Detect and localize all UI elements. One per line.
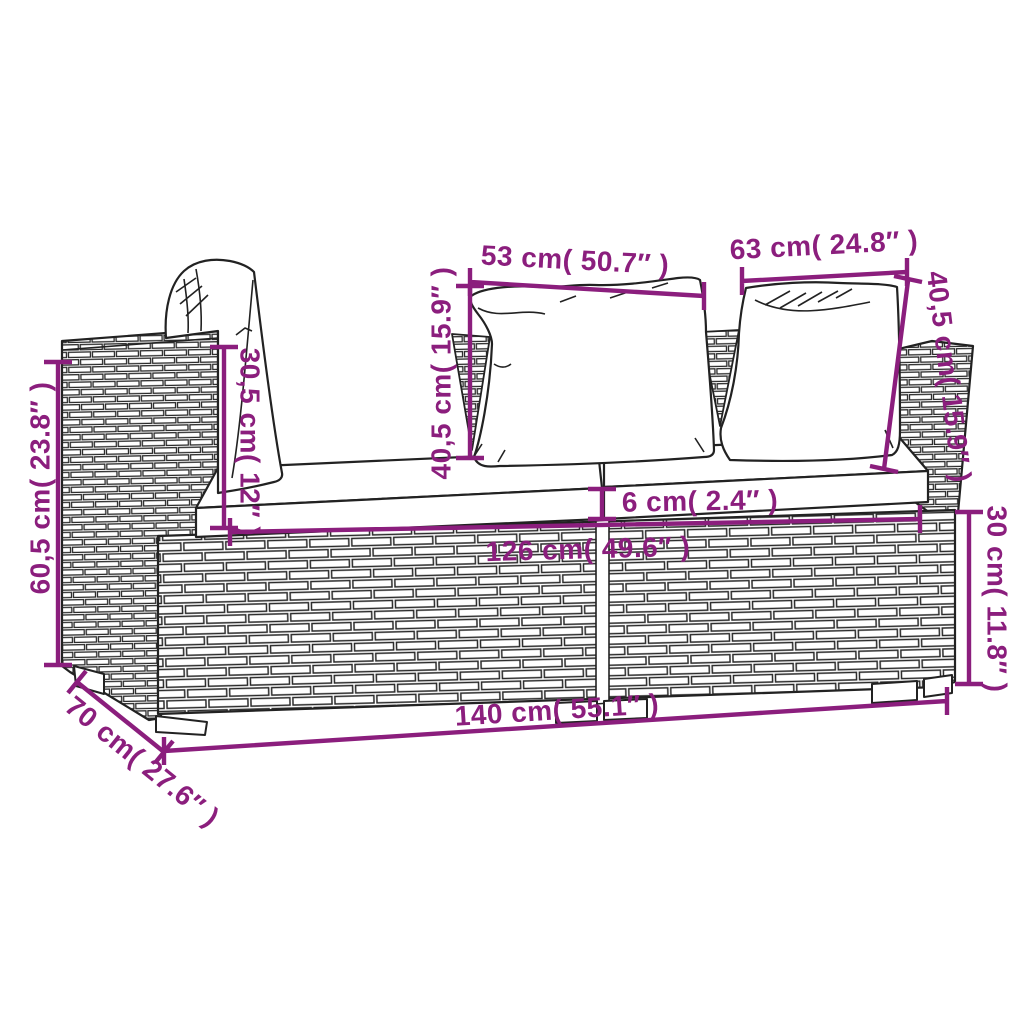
sofa-dimension-diagram: 53 cm( 50.7″ ) 63 cm( 24.8″ ) 40,5 cm( 1…: [0, 0, 1024, 1024]
back-pillow-right: [720, 282, 900, 461]
dimension-label: 40,5 cm( 15.9″ ): [425, 267, 456, 480]
dimension-line: [955, 512, 983, 684]
sofa-line-art: [62, 260, 973, 735]
dimension-label: 63 cm( 24.8″ ): [729, 224, 919, 265]
foot: [872, 681, 917, 703]
back-pillows: [166, 260, 900, 493]
dimension-base-height: 30 cm( 11.8″ ): [955, 506, 1013, 693]
foot: [156, 716, 207, 735]
dimension-label: 30 cm( 11.8″ ): [982, 506, 1013, 693]
dimension-label: 53 cm( 50.7″ ): [480, 239, 670, 280]
dimension-label: 60,5 cm( 23.8″ ): [24, 382, 55, 595]
dimension-label: 30,5 cm( 12″ ): [235, 348, 266, 537]
dimension-label: 6 cm( 2.4″ ): [622, 484, 779, 518]
dimension-diagram-page: 53 cm( 50.7″ ) 63 cm( 24.8″ ) 40,5 cm( 1…: [0, 0, 1024, 1024]
dimension-label: 126 cm( 49.6″ ): [485, 531, 690, 567]
back-pillow-center: [470, 277, 714, 466]
